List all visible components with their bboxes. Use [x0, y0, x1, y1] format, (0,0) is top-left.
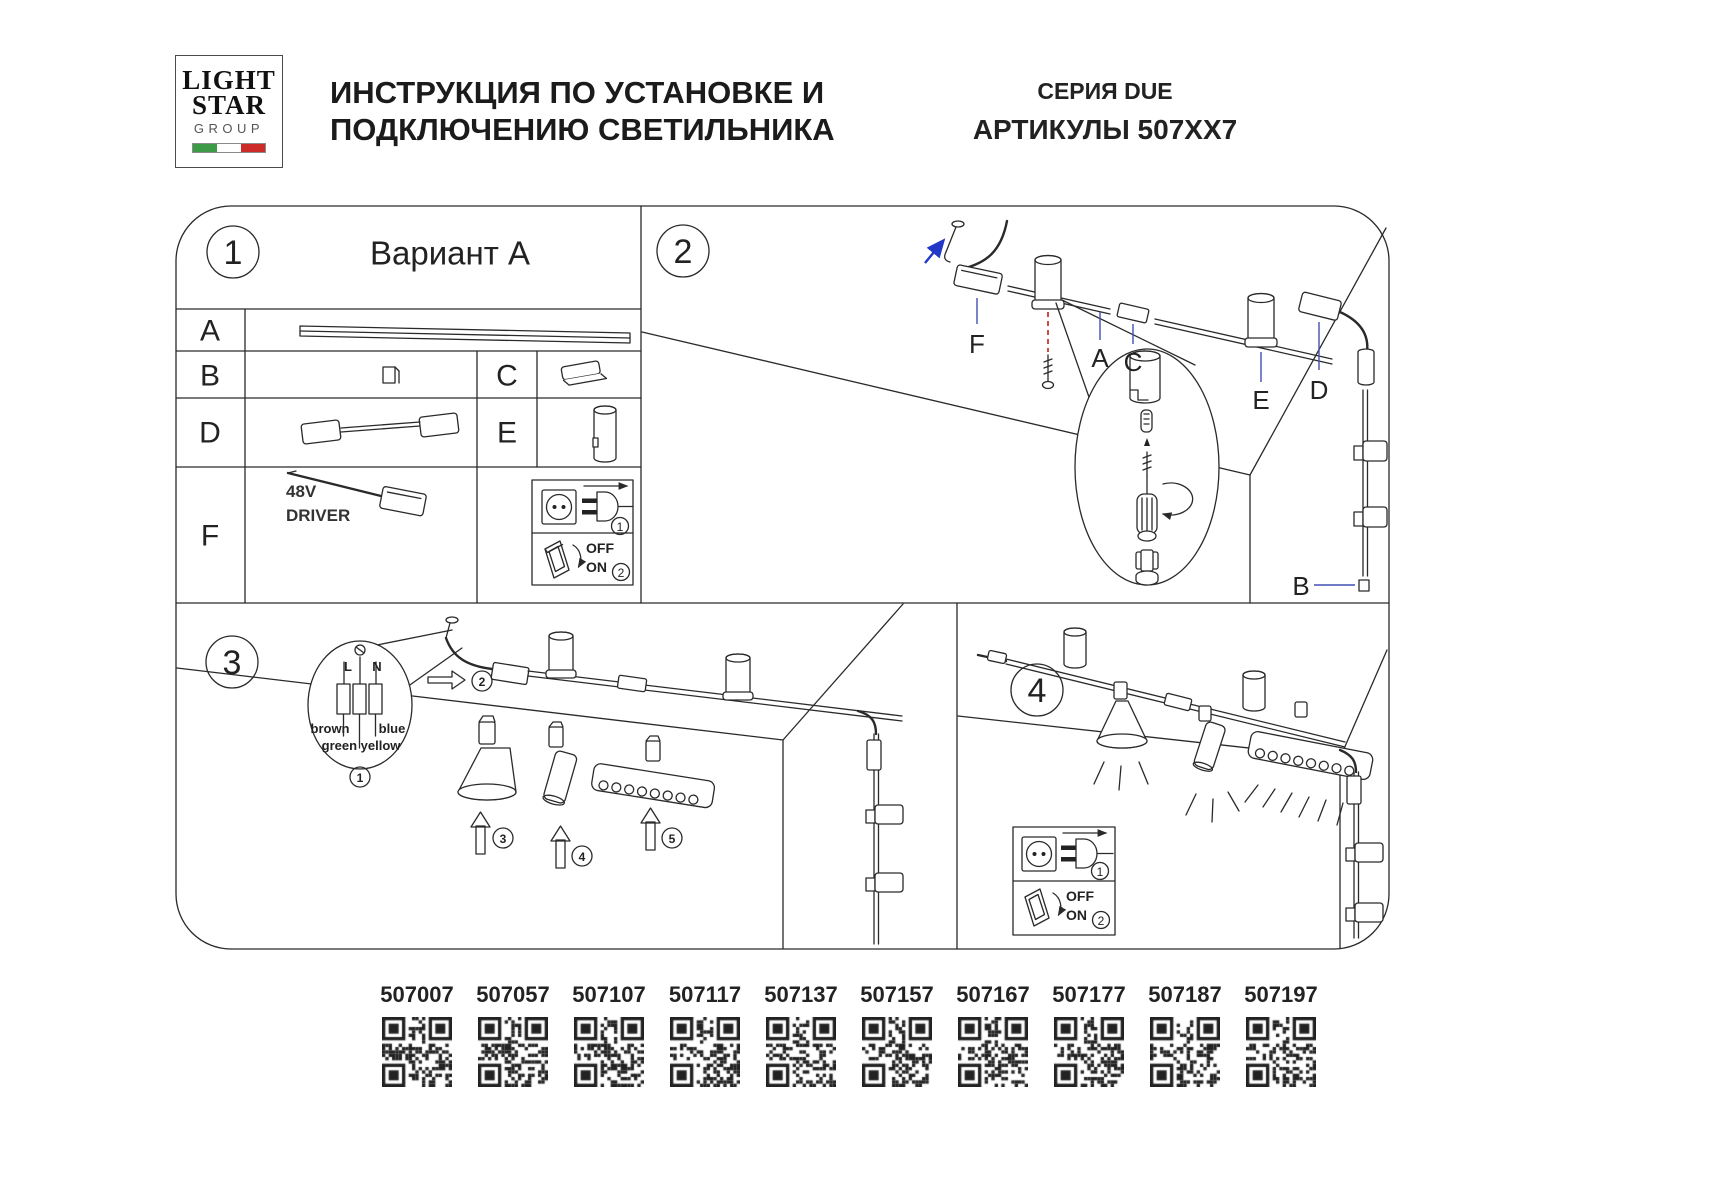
article-item: 507177 — [1041, 982, 1137, 1087]
switch-step-number: 2 — [618, 566, 625, 580]
qr-code — [574, 1017, 644, 1087]
wire-label-green-yellow: green yellow — [322, 738, 402, 753]
mount-cylinder — [1032, 256, 1064, 310]
power-steps-box: 1 OFF ON 2 — [532, 480, 633, 585]
wire-label-l: L — [344, 659, 352, 674]
label-c: C — [1124, 347, 1143, 377]
label-d: D — [1310, 375, 1329, 405]
article-item: 507187 — [1137, 982, 1233, 1087]
panel1-number: 1 — [224, 234, 243, 272]
assembly-detail-magnifier — [1075, 349, 1219, 585]
label-a: A — [1091, 343, 1109, 373]
article-item: 507007 — [369, 982, 465, 1087]
spot-step-number: 4 — [579, 850, 586, 864]
article-number: 507007 — [369, 982, 465, 1008]
article-number: 507107 — [561, 982, 657, 1008]
panel4-number: 4 — [1028, 672, 1047, 710]
wire-label-n: N — [372, 659, 381, 674]
article-number: 507137 — [753, 982, 849, 1008]
qr-code — [862, 1017, 932, 1087]
linear-step-number: 5 — [669, 832, 676, 846]
cone-step-number: 3 — [500, 832, 507, 846]
wiring-step-number: 1 — [357, 771, 364, 785]
article-number: 507117 — [657, 982, 753, 1008]
article-number: 507167 — [945, 982, 1041, 1008]
article-number: 507187 — [1137, 982, 1233, 1008]
qr-code — [766, 1017, 836, 1087]
article-number: 507197 — [1233, 982, 1329, 1008]
label-f: F — [969, 329, 985, 359]
wire-label-blue: blue — [379, 721, 406, 736]
mount-cylinder-e — [1245, 294, 1277, 348]
qr-code — [1054, 1017, 1124, 1087]
row-label-d: D — [199, 417, 221, 450]
plug-step-number: 1 — [617, 520, 624, 534]
driver-voltage-label: 48V — [286, 482, 317, 501]
switch-on-label: ON — [586, 559, 607, 575]
row-label-b: B — [200, 360, 220, 393]
row-label-a: A — [200, 315, 220, 348]
row-label-f: F — [201, 520, 219, 553]
cylinder-icon — [593, 406, 616, 462]
label-e: E — [1252, 385, 1269, 415]
qr-code — [1246, 1017, 1316, 1087]
panel1-title: Вариант A — [370, 235, 530, 272]
qr-code — [1150, 1017, 1220, 1087]
switch-off-label: OFF — [586, 540, 614, 556]
article-item: 507117 — [657, 982, 753, 1087]
article-item: 507167 — [945, 982, 1041, 1087]
article-item: 507137 — [753, 982, 849, 1087]
articles-row: 5070075070575071075071175071375071575071… — [369, 982, 1329, 1087]
instruction-sheet: LIGHT STAR GROUP ИНСТРУКЦИЯ ПО УСТАНОВКЕ… — [0, 0, 1715, 1200]
row-label-e: E — [497, 417, 517, 450]
article-number: 507057 — [465, 982, 561, 1008]
article-item: 507107 — [561, 982, 657, 1087]
article-item: 507197 — [1233, 982, 1329, 1087]
switch-on-label: ON — [1066, 907, 1087, 923]
plug-step-number: 1 — [1097, 865, 1104, 879]
switch-off-label: OFF — [1066, 888, 1094, 904]
panel3-number: 3 — [223, 644, 242, 682]
article-number: 507157 — [849, 982, 945, 1008]
switch-step-number: 2 — [1098, 914, 1105, 928]
article-item: 507157 — [849, 982, 945, 1087]
article-number: 507177 — [1041, 982, 1137, 1008]
row-label-c: C — [496, 360, 518, 393]
qr-code — [670, 1017, 740, 1087]
driver-name-label: DRIVER — [286, 506, 350, 525]
track-step-number: 2 — [479, 675, 486, 689]
qr-code — [382, 1017, 452, 1087]
panel2-number: 2 — [674, 233, 693, 271]
label-b: B — [1292, 571, 1309, 601]
wire-label-brown: brown — [311, 721, 350, 736]
power-steps-box-4: 1 OFF ON 2 — [1013, 827, 1115, 935]
qr-code — [478, 1017, 548, 1087]
qr-code — [958, 1017, 1028, 1087]
article-item: 507057 — [465, 982, 561, 1087]
